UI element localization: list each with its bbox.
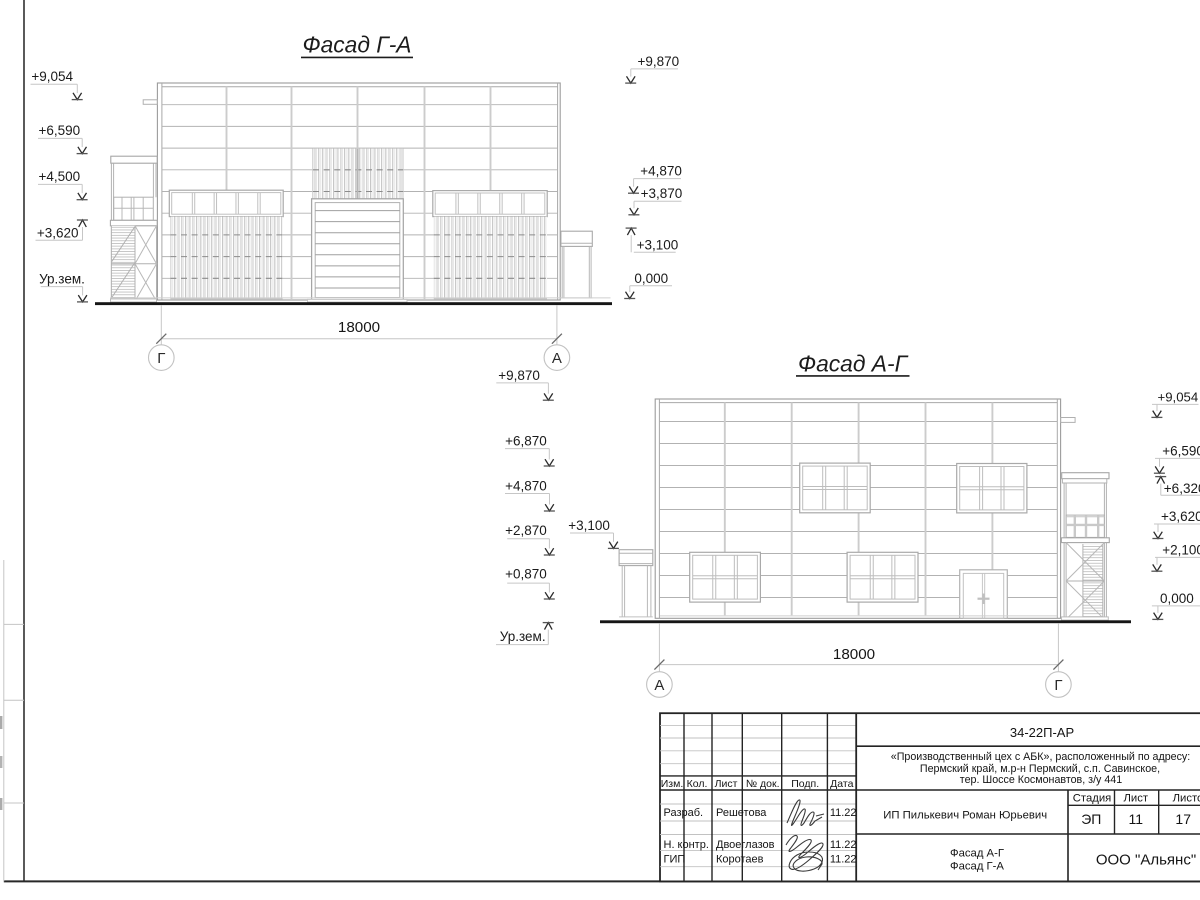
- svg-text:Ур.зем.: Ур.зем.: [500, 629, 546, 644]
- svg-text:ИП Пилькевич Роман Юрьевич: ИП Пилькевич Роман Юрьевич: [883, 810, 1047, 822]
- svg-text:Подп.: Подп.: [791, 778, 819, 790]
- svg-text:Стадия: Стадия: [1073, 793, 1112, 805]
- svg-text:+6,590: +6,590: [39, 123, 81, 138]
- svg-text:0,000: 0,000: [1160, 591, 1194, 606]
- svg-text:11.22: 11.22: [830, 854, 857, 866]
- svg-text:Лист: Лист: [1124, 793, 1149, 805]
- svg-text:Двоеглазов: Двоеглазов: [716, 839, 775, 851]
- svg-text:18000: 18000: [338, 319, 380, 336]
- svg-text:Фасад Г-А: Фасад Г-А: [950, 860, 1004, 872]
- svg-text:ЭП: ЭП: [1081, 811, 1101, 827]
- svg-text:тер. Шоссе Космонавтов, з/у 44: тер. Шоссе Космонавтов, з/у 441: [960, 774, 1122, 786]
- svg-text:А: А: [654, 677, 664, 694]
- svg-text:+9,870: +9,870: [638, 54, 680, 69]
- svg-text:Ур.зем.: Ур.зем.: [39, 272, 85, 287]
- svg-text:+6,320: +6,320: [1164, 481, 1200, 496]
- svg-text:34-22П-АР: 34-22П-АР: [1010, 725, 1074, 740]
- svg-text:ГИП: ГИП: [664, 854, 686, 866]
- svg-text:+3,620: +3,620: [37, 225, 79, 240]
- svg-text:+9,054: +9,054: [1158, 390, 1199, 405]
- svg-text:Коротаев: Коротаев: [716, 854, 764, 866]
- svg-text:+2,100: +2,100: [1162, 543, 1200, 558]
- svg-text:+9,870: +9,870: [498, 368, 540, 383]
- svg-text:11.22: 11.22: [830, 839, 857, 851]
- svg-text:Н. контр.: Н. контр.: [664, 839, 709, 851]
- svg-text:Фасад А-Г: Фасад А-Г: [950, 847, 1004, 859]
- svg-text:0,000: 0,000: [634, 271, 668, 286]
- svg-text:+4,870: +4,870: [640, 163, 682, 178]
- svg-text:Решетова: Решетова: [716, 807, 767, 819]
- svg-text:Лист: Лист: [715, 778, 738, 790]
- svg-text:Г: Г: [157, 350, 165, 367]
- svg-text:+4,870: +4,870: [505, 479, 547, 494]
- svg-text:+0,870: +0,870: [505, 566, 547, 581]
- svg-text:+2,870: +2,870: [505, 523, 547, 538]
- svg-text:№ док.: № док.: [746, 778, 780, 790]
- svg-text:Фасад А-Г: Фасад А-Г: [798, 351, 909, 377]
- svg-text:А: А: [552, 350, 562, 367]
- svg-text:+3,870: +3,870: [641, 186, 683, 201]
- svg-text:«Производственный цех с АБК»,: «Производственный цех с АБК», расположен…: [891, 751, 1191, 763]
- svg-text:+4,500: +4,500: [39, 169, 81, 184]
- svg-text:+9,054: +9,054: [31, 69, 73, 84]
- svg-text:Изм.: Изм.: [661, 778, 684, 790]
- svg-text:+6,590: +6,590: [1162, 444, 1200, 459]
- svg-text:18000: 18000: [833, 646, 875, 663]
- svg-text:+3,100: +3,100: [568, 518, 610, 533]
- svg-text:Г: Г: [1054, 677, 1062, 694]
- svg-text:11: 11: [1129, 811, 1144, 827]
- svg-text:Листов: Листов: [1173, 793, 1200, 805]
- svg-text:17: 17: [1175, 811, 1191, 827]
- svg-text:Пермский край, м.р-н Пермский,: Пермский край, м.р-н Пермский, с.п. Сави…: [920, 763, 1160, 775]
- svg-text:Кол.: Кол.: [687, 778, 708, 790]
- svg-text:+3,100: +3,100: [637, 238, 679, 253]
- svg-text:+6,870: +6,870: [505, 434, 547, 449]
- svg-text:ООО "Альянс": ООО "Альянс": [1096, 852, 1196, 869]
- svg-text:11.22: 11.22: [830, 807, 857, 819]
- svg-text:+3,620: +3,620: [1161, 509, 1200, 524]
- svg-text:Дата: Дата: [830, 778, 853, 790]
- svg-text:Разраб.: Разраб.: [664, 807, 704, 819]
- svg-text:Фасад Г-А: Фасад Г-А: [302, 31, 411, 57]
